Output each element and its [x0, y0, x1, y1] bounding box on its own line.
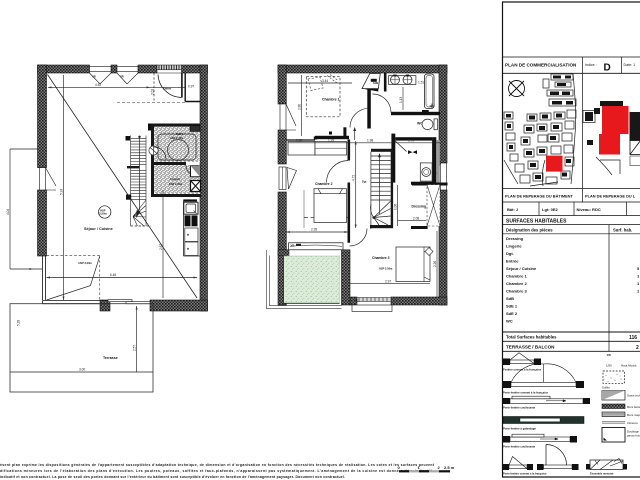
svg-text:4.52: 4.52 — [95, 83, 101, 87]
svg-text:VR: VR — [120, 75, 124, 79]
svg-text:1.29: 1.29 — [328, 139, 334, 143]
svg-text:D: D — [604, 63, 611, 74]
svg-text:TERRASSE / BALCON: TERRASSE / BALCON — [506, 345, 555, 350]
svg-text:Total Surfaces habitables: Total Surfaces habitables — [506, 335, 557, 340]
svg-text:2.80: 2.80 — [298, 104, 302, 110]
svg-text:Chambre 1: Chambre 1 — [506, 273, 527, 278]
svg-text:2.97: 2.97 — [385, 279, 391, 283]
svg-text:SdB: SdB — [373, 81, 378, 85]
svg-text:ésent plan exprime les disposi: ésent plan exprime les dispositions géné… — [0, 463, 435, 467]
svg-text:Dgt: Dgt — [362, 180, 366, 184]
svg-text:Surf. hab.: Surf. hab. — [613, 228, 632, 233]
svg-text:Séjour / Cuisine: Séjour / Cuisine — [84, 227, 113, 231]
svg-text:1.51: 1.51 — [418, 81, 424, 85]
svg-text:Séjour / Cuisine: Séjour / Cuisine — [506, 266, 537, 271]
svg-text:2.95: 2.95 — [311, 228, 317, 232]
svg-text:Porte fenêtre coulissante: Porte fenêtre coulissante — [503, 445, 536, 449]
svg-text:Chambre 3: Chambre 3 — [372, 256, 390, 260]
svg-text:Dgt.: Dgt. — [506, 251, 514, 256]
svg-text:SdE 1: SdE 1 — [506, 303, 518, 308]
svg-text:1.98: 1.98 — [367, 139, 373, 143]
svg-text:WC: WC — [506, 318, 513, 323]
svg-text:4.04: 4.04 — [6, 209, 10, 215]
svg-text:5,50m: 5,50m — [99, 212, 107, 216]
svg-text:indicatif et non contractuel.: indicatif et non contractuel. La pose de… — [0, 475, 345, 479]
svg-text:HSP 2.45m: HSP 2.45m — [169, 182, 183, 186]
svg-text:Haut Modul.: Haut Modul. — [621, 364, 637, 368]
svg-text:Ensemble menuisé: Ensemble menuisé — [590, 472, 614, 476]
svg-text:SdE 1: SdE 1 — [176, 132, 184, 136]
svg-text:HSP 3,00m: HSP 3,00m — [79, 261, 93, 265]
svg-text:difications mineures lors de l: difications mineures lors de l'élaborati… — [0, 469, 433, 473]
svg-text:5.93: 5.93 — [59, 189, 63, 195]
svg-text:2.01: 2.01 — [151, 89, 155, 95]
svg-text:SdE 2: SdE 2 — [506, 311, 518, 316]
svg-text:1/8: 1/8 — [607, 353, 612, 357]
svg-text:Chambre 2: Chambre 2 — [506, 281, 527, 286]
svg-text:Date: 1: Date: 1 — [624, 63, 636, 67]
svg-text:Niveau: RDC: Niveau: RDC — [577, 207, 601, 212]
svg-text:2.67: 2.67 — [159, 244, 163, 250]
svg-text:1.06: 1.06 — [394, 204, 398, 210]
svg-text:Porte fenêtre ouvrant à la fra: Porte fenêtre ouvrant à la française — [503, 390, 548, 394]
svg-text:Lgt: 0E2: Lgt: 0E2 — [542, 207, 559, 212]
svg-text:Bât: J: Bât: J — [507, 207, 518, 212]
svg-text:3.00: 3.00 — [79, 368, 85, 372]
svg-text:2.57: 2.57 — [132, 345, 136, 351]
svg-text:PLAN DE REPERAGE DU L: PLAN DE REPERAGE DU L — [585, 193, 636, 198]
svg-text:Murs maço: Murs maço — [627, 413, 640, 417]
svg-text:PLAN DE COMMERCIALISATION: PLAN DE COMMERCIALISATION — [505, 63, 577, 68]
svg-text:Chambre 2: Chambre 2 — [315, 182, 333, 186]
svg-text:parois froid: parois froid — [627, 434, 640, 438]
svg-text:Indice :: Indice : — [585, 63, 597, 67]
svg-text:1/50: 1/50 — [606, 364, 612, 368]
svg-text:Murs béton: Murs béton — [627, 405, 640, 409]
svg-text:2.26: 2.26 — [433, 261, 437, 267]
svg-text:4.72: 4.72 — [352, 175, 356, 181]
svg-text:VR: VR — [92, 75, 96, 79]
svg-text:2.08: 2.08 — [413, 217, 419, 221]
svg-text:VR: VR — [291, 244, 295, 248]
svg-text:Dressing: Dressing — [506, 236, 524, 241]
svg-text:Lingerie: Lingerie — [506, 243, 522, 248]
svg-text:2: 2 — [636, 345, 639, 351]
svg-text:Chambre 1: Chambre 1 — [322, 98, 340, 102]
svg-text:PLAN DE REPERAGE DU BÂTIMENT: PLAN DE REPERAGE DU BÂTIMENT — [505, 193, 573, 198]
svg-text:0.97: 0.97 — [188, 85, 194, 89]
svg-text:Entrée: Entrée — [506, 258, 519, 263]
svg-text:1.70: 1.70 — [408, 139, 414, 143]
svg-text:6.46: 6.46 — [110, 273, 116, 277]
svg-text:Soffite: Soffite — [602, 385, 610, 389]
svg-text:116: 116 — [629, 335, 637, 341]
svg-text:1.13: 1.13 — [399, 97, 403, 103]
svg-text:VR: VR — [354, 299, 358, 303]
svg-text:Désignation des pièces: Désignation des pièces — [506, 228, 553, 233]
svg-text:Dressing: Dressing — [412, 205, 427, 209]
svg-text:2.5 m: 2.5 m — [444, 465, 455, 470]
svg-text:Chambre 3: Chambre 3 — [506, 288, 527, 293]
svg-text:Porte fenêtre coulissante: Porte fenêtre coulissante — [503, 406, 536, 410]
svg-text:HSP 2.50m: HSP 2.50m — [379, 267, 393, 271]
svg-text:Cloisons: Cloisons — [627, 421, 638, 425]
svg-text:SURFACES HABITABLES: SURFACES HABITABLES — [506, 219, 567, 225]
svg-text:Lingerie: Lingerie — [170, 177, 181, 181]
svg-text:5.28: 5.28 — [17, 320, 21, 326]
svg-text:3.44: 3.44 — [322, 79, 328, 83]
svg-text:Porte fenêtre à galandage: Porte fenêtre à galandage — [503, 427, 536, 431]
svg-text:Terrasse: Terrasse — [103, 356, 118, 360]
svg-text:1.55: 1.55 — [296, 139, 302, 143]
svg-text:Porte fenêtre ouvrant à la fra: Porte fenêtre ouvrant à la française — [503, 472, 547, 476]
svg-text:HSP 2.45m: HSP 2.45m — [170, 136, 184, 140]
svg-text:SdB: SdB — [506, 296, 514, 301]
svg-text:Gaine techn: Gaine techn — [627, 394, 640, 398]
